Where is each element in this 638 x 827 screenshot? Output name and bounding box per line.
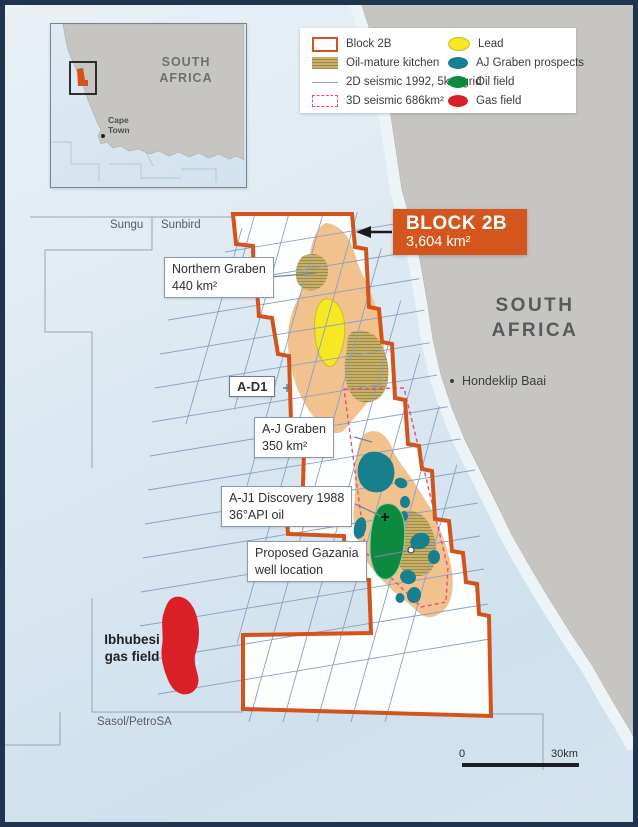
legend: Block 2B Oil-mature kitchen 2D seismic 1… [300, 28, 576, 113]
block2b-title: BLOCK 2B [406, 214, 527, 234]
callout-northern-graben: Northern Graben 440 km² [164, 257, 274, 298]
inset-land [63, 24, 244, 160]
legend-item-lead: Lead [448, 37, 504, 51]
arrowhead-icon [356, 226, 371, 238]
legend-item-block2b: Block 2B [312, 37, 391, 51]
oil-field-swatch-icon [448, 76, 468, 88]
scale-max-label: 30km [551, 748, 578, 760]
label-sasol-petrosa: Sasol/PetroSA [97, 716, 172, 728]
callout-aj1-discovery: A-J1 Discovery 1988 36°API oil [221, 486, 352, 527]
inset-cape-town-label: Cape Town [108, 116, 130, 136]
label-sunbird: Sunbird [161, 219, 201, 231]
block2b-title-box: BLOCK 2B 3,604 km² [393, 209, 527, 255]
legend-item-oil-field: Oil field [448, 75, 514, 89]
inset-country-label: SOUTH AFRICA [131, 54, 241, 87]
inset-locator-map: SOUTH AFRICA Cape Town [50, 23, 247, 188]
inset-country-line2: AFRICA [131, 70, 241, 86]
callout-aj-graben: A-J Graben 350 km² [254, 417, 334, 458]
prospects-swatch-icon [448, 57, 468, 69]
block2b-area: 3,604 km² [406, 234, 527, 251]
kitchen-swatch-icon [312, 57, 338, 69]
lead-swatch-icon [448, 37, 470, 51]
block2b-swatch-icon [312, 37, 338, 52]
legend-item-3d-seismic: 3D seismic 686km² [312, 94, 444, 108]
callout-ad1: A-D1 [229, 376, 275, 397]
label-south-africa: SOUTH AFRICA [455, 294, 615, 343]
seismic-3d-swatch-icon [312, 95, 338, 107]
map-canvas: SOUTH AFRICA Cape Town Block 2B Oil-matu… [0, 0, 638, 827]
seismic-2d-swatch-icon [312, 82, 338, 83]
legend-item-prospects: AJ Graben prospects [448, 56, 584, 70]
callout-gazania: Proposed Gazania well location [247, 541, 367, 582]
scale-zero-label: 0 [459, 748, 465, 760]
inset-map-svg [51, 24, 244, 185]
hondeklip-dot [450, 379, 454, 383]
legend-item-kitchen: Oil-mature kitchen [312, 56, 439, 70]
label-hondeklip-baai: Hondeklip Baai [462, 374, 546, 388]
label-ibhubesi-gas-field: Ibhubesi gas field [92, 632, 172, 666]
inset-cape-town-dot [101, 134, 105, 138]
scale-bar [462, 763, 579, 767]
label-sungu: Sungu [110, 219, 143, 231]
gazania-well-marker [408, 547, 414, 553]
legend-item-gas-field: Gas field [448, 94, 521, 108]
gas-field-swatch-icon [448, 95, 468, 107]
inset-country-line1: SOUTH [131, 54, 241, 70]
